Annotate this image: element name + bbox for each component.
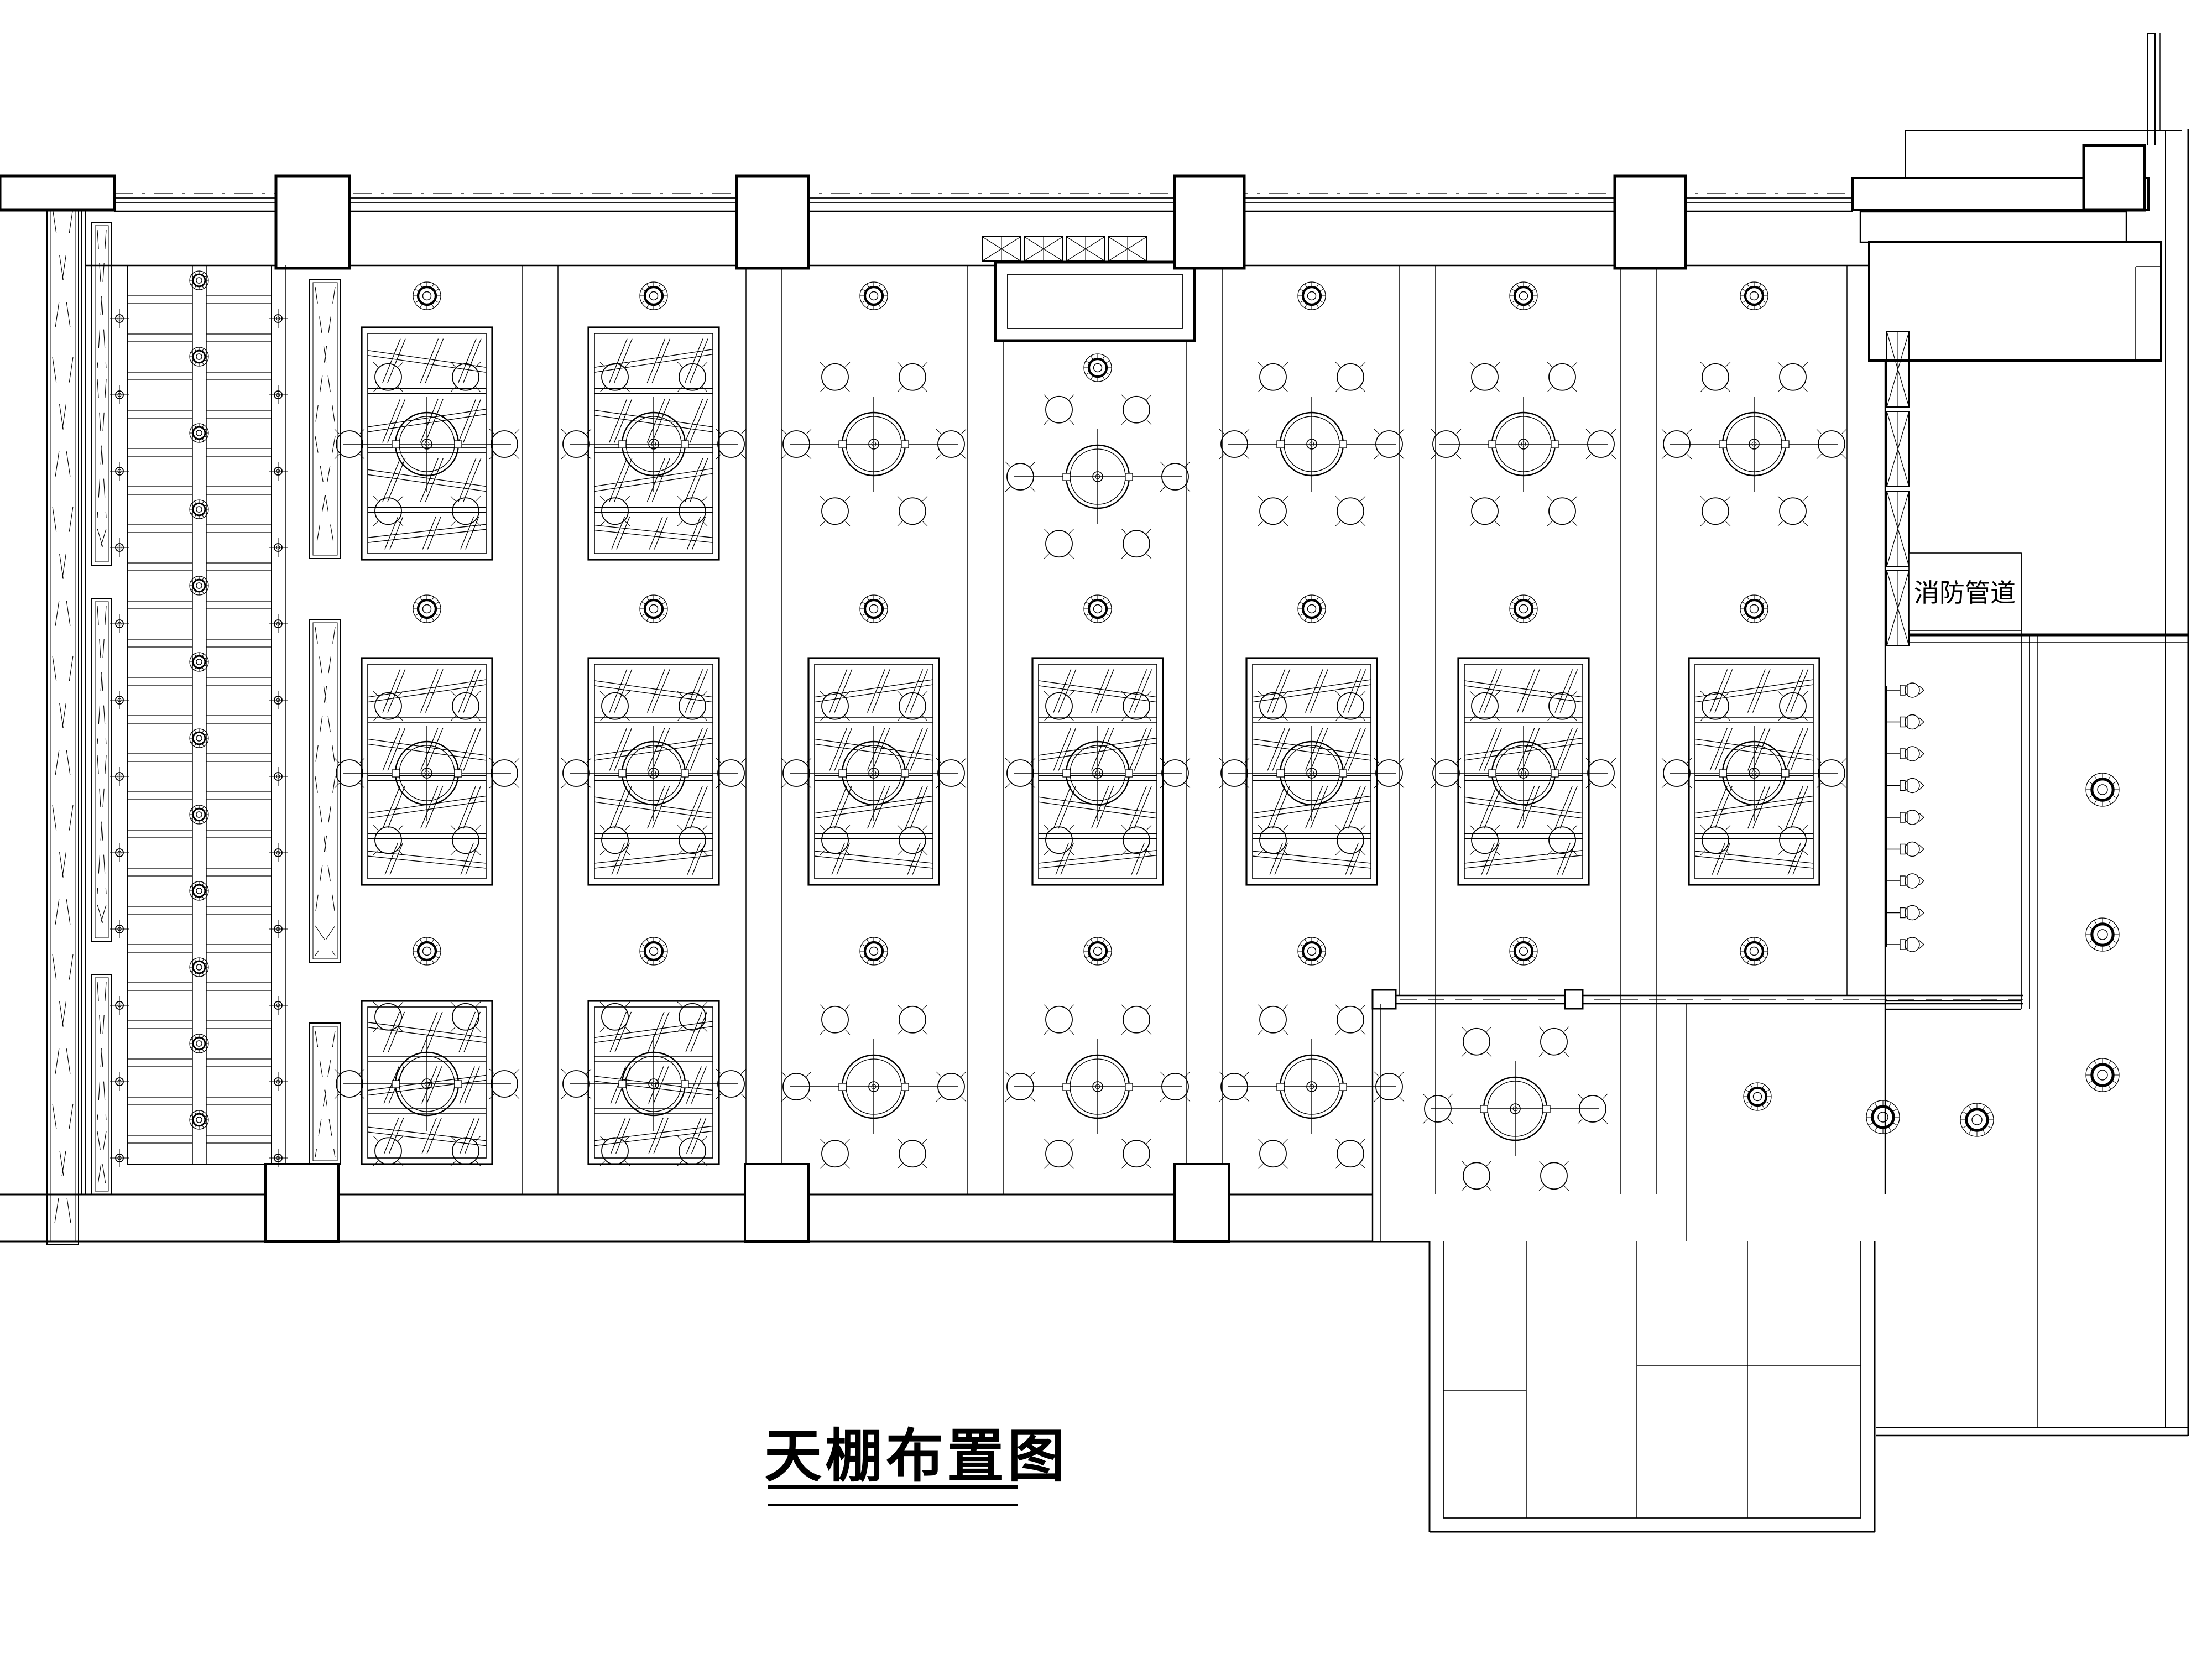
downlight-spoke (1531, 613, 1535, 615)
chandelier-lamp-tick (820, 521, 825, 526)
downlight-spoke (1305, 304, 1307, 307)
downlight-spoke (862, 613, 865, 615)
chandelier-lamp-tick (1121, 420, 1126, 424)
chandelier-lamp-tick (922, 1164, 927, 1168)
downlight-spoke (1969, 1129, 1971, 1134)
circle (2098, 785, 2107, 795)
downlight-spoke (415, 602, 419, 604)
circle (193, 885, 205, 897)
chandelier-lamp-tick (1539, 1027, 1543, 1031)
chandelier-hub (901, 1083, 909, 1091)
chandelier-lamp-tick (1258, 1139, 1262, 1143)
downlight-symbol (2086, 1058, 2119, 1092)
column-block (265, 1164, 338, 1241)
downlight-spoke (202, 577, 204, 580)
wall-rect (95, 226, 108, 562)
chandelier-lamp-tick (1360, 1164, 1365, 1168)
column-block (276, 176, 349, 268)
downlight-spoke (1747, 284, 1750, 288)
chandelier-lamp-tick (1258, 387, 1262, 392)
downlight-spoke (1517, 597, 1519, 601)
circle (865, 942, 883, 960)
downlight-spoke (1528, 939, 1530, 943)
extension-floor (1430, 1241, 1875, 1532)
downlight-spoke (878, 284, 880, 288)
downlight-spoke (202, 1035, 204, 1038)
circle (193, 274, 205, 286)
chandelier-lamp-tick (1160, 1097, 1165, 1101)
downlight-spoke (1316, 959, 1318, 963)
chandelier-lamp-tick (1121, 395, 1126, 399)
downlight-symbol (190, 424, 208, 442)
wall-rect (313, 283, 337, 555)
downlight-spoke (431, 284, 434, 288)
downlight-spoke (1102, 617, 1104, 620)
chandelier-lamp-tick (845, 1005, 849, 1009)
duct-x-box (1887, 491, 1909, 566)
downlight-spoke (1869, 1123, 1874, 1125)
chandelier-lamp-tick (1069, 1139, 1073, 1143)
chandelier-lamp-tick (1121, 554, 1126, 559)
chandelier-lamp-tick (1146, 1030, 1151, 1034)
downlight-spoke (647, 304, 649, 307)
downlight-symbol (190, 271, 208, 290)
circle (1308, 947, 1316, 956)
chandelier-lamp-tick (1185, 1072, 1190, 1076)
downlight-spoke (1091, 939, 1093, 943)
chandelier-lamp (1337, 498, 1364, 524)
downlight-spoke (2088, 940, 2093, 943)
downlight-spoke (1742, 613, 1746, 615)
chandelier-lamp-tick (898, 1164, 902, 1168)
chandelier-lamp-tick (1044, 529, 1048, 533)
sprinkler-symbol (1887, 874, 1924, 888)
chandelier-lamp-tick (936, 1072, 941, 1076)
downlight-spoke (881, 602, 885, 604)
downlight-spoke (1528, 304, 1530, 307)
downlight-spoke (881, 613, 885, 615)
circle (418, 942, 436, 960)
chandelier-lamp-tick (845, 362, 849, 367)
chandelier-lamp-tick (961, 1072, 966, 1076)
downlight-spoke (867, 597, 869, 601)
chandelier-lamp-tick (1069, 1005, 1073, 1009)
downlight-spoke (195, 362, 196, 365)
chandelier-lamp-tick (1335, 1139, 1340, 1143)
chandelier-lamp-tick (1495, 496, 1499, 500)
wall-rect (1900, 781, 1905, 791)
downlight-spoke (205, 810, 207, 812)
column-block (1175, 176, 1244, 268)
wall-rect (1900, 749, 1905, 759)
chandelier-lamp (1541, 1162, 1567, 1189)
chandelier-lamp-tick (1219, 758, 1224, 763)
wall-rect (47, 200, 79, 1244)
drawing-title-block: 天棚布置图 (764, 1409, 1024, 1493)
downlight-spoke (2108, 1084, 2111, 1089)
circle (193, 351, 205, 363)
downlight-spoke (431, 304, 434, 307)
chandelier-lamp-tick (1146, 395, 1151, 399)
downlight-spoke (1105, 613, 1109, 615)
circle (1094, 947, 1102, 956)
downlight-spoke (205, 429, 207, 430)
downlight-spoke (1305, 597, 1307, 601)
chandelier-lamp-tick (1547, 362, 1552, 367)
downlight-spoke (1105, 372, 1109, 374)
downlight-spoke (415, 289, 419, 291)
circle (1749, 1088, 1766, 1105)
downlight-spoke (1086, 602, 1089, 604)
circle (1515, 600, 1532, 618)
crosshair-light-symbol (110, 843, 129, 862)
circle (193, 427, 205, 439)
chandelier-lamp-tick (1258, 1164, 1262, 1168)
chandelier-lamp (1702, 364, 1729, 390)
chandelier-lamp-tick (1283, 362, 1287, 367)
circle (870, 605, 878, 613)
downlight-spoke (1528, 617, 1530, 620)
chandelier-lamp-tick (1456, 429, 1460, 434)
wall-rect (310, 619, 341, 962)
chandelier-lamp-tick (1495, 387, 1499, 392)
circle (1515, 942, 1532, 960)
chandelier-lamp-tick (1005, 1072, 1010, 1076)
downlight-spoke (878, 617, 880, 620)
downlight-spoke (1528, 959, 1530, 963)
downlight-spoke (431, 959, 434, 963)
downlight-spoke (1091, 597, 1093, 601)
chandelier-lamp-tick (1539, 1186, 1543, 1191)
downlight-symbol (190, 1110, 208, 1129)
downlight-spoke (867, 617, 869, 620)
downlight-spoke (1531, 602, 1535, 604)
downlight-spoke (1105, 956, 1109, 958)
walls-and-beams-layer (0, 176, 1885, 1244)
chandelier-hub (1277, 441, 1284, 448)
downlight-spoke (202, 744, 204, 747)
chandelier-lamp-tick (1005, 1097, 1010, 1101)
circle (1872, 1107, 1893, 1128)
chandelier-lamp-tick (898, 387, 902, 392)
downlight-spoke (867, 939, 869, 943)
chandelier-lamp-tick (1486, 1161, 1491, 1165)
chandelier-lamp-tick (1462, 1027, 1466, 1031)
circle (650, 947, 658, 956)
chandelier-lamp-tick (961, 783, 966, 787)
sprinkler-symbol (1887, 747, 1924, 761)
duct-x-box (1887, 571, 1909, 646)
hatch-dash (315, 776, 335, 915)
chandelier-symbol (1219, 1005, 1404, 1168)
chandelier-lamp (1780, 364, 1806, 390)
chandelier-lamp-tick (845, 496, 849, 500)
downlight-symbol (1740, 937, 1768, 965)
chandelier-lamp-tick (1539, 1052, 1543, 1056)
downlight-spoke (435, 602, 439, 604)
downlight-spoke (1511, 956, 1515, 958)
chandelier-lamp-tick (1462, 1052, 1466, 1056)
ceiling-plan-canvas: 消防管道 (0, 0, 2212, 1659)
downlight-spoke (1305, 284, 1307, 288)
downlight-spoke (195, 667, 196, 670)
chandelier-lamp (1472, 364, 1498, 390)
chandelier-lamp-tick (1841, 758, 1846, 763)
downlight-spoke (1511, 300, 1515, 302)
chandelier-lamp-tick (1778, 387, 1782, 392)
circle (645, 287, 662, 305)
hatch-dash (315, 1031, 335, 1157)
circle (1094, 364, 1102, 372)
circle (645, 600, 662, 618)
chandelier-lamp-tick (1803, 521, 1807, 526)
downlight-spoke (205, 505, 207, 507)
chandelier-lamp-tick (961, 429, 966, 434)
sprinkler-symbol (1887, 779, 1924, 793)
chandelier-lamp-tick (781, 454, 786, 458)
downlight-spoke (195, 1049, 196, 1052)
downlight-spoke (2088, 1081, 2093, 1083)
wall-rect (310, 279, 341, 559)
chandelier-hub (901, 770, 909, 777)
downlight-spoke (1091, 617, 1093, 620)
chandelier-lamp-tick (1470, 362, 1474, 367)
chandelier-lamp-tick (1185, 487, 1190, 491)
downlight-spoke (1316, 304, 1318, 307)
downlight-spoke (1762, 613, 1766, 615)
chandelier-lamp-tick (1778, 521, 1782, 526)
circle (1745, 287, 1763, 305)
downlight-spoke (1747, 617, 1750, 620)
chandelier-lamp-tick (1399, 1072, 1404, 1076)
chandelier-hub (1782, 770, 1789, 777)
crosshair-light-symbol (110, 691, 129, 709)
chandelier-hub (839, 441, 846, 448)
downlight-spoke (195, 286, 196, 289)
downlight-spoke (862, 945, 865, 947)
downlight-spoke (867, 284, 869, 288)
downlight-spoke (661, 956, 665, 958)
downlight-spoke (1762, 945, 1766, 947)
chandelier-lamp-tick (922, 1005, 927, 1009)
downlight-spoke (420, 617, 422, 620)
chandelier-lamp-tick (1121, 1139, 1126, 1143)
chandelier-lamp-tick (1258, 496, 1262, 500)
downlight-spoke (1531, 945, 1535, 947)
chandelier-hub (619, 1081, 626, 1088)
downlight-spoke (1531, 956, 1535, 958)
chandelier-hub (619, 770, 626, 777)
downlight-spoke (1300, 289, 1303, 291)
circle (1520, 292, 1528, 300)
chandelier-hub (392, 441, 399, 448)
downlight-spoke (1319, 300, 1323, 302)
downlight-spoke (1305, 617, 1307, 620)
chandelier-lamp-tick (1841, 783, 1846, 787)
circle (1303, 600, 1321, 618)
chandelier-lamp-tick (820, 387, 825, 392)
chandelier-lamp (1046, 1006, 1072, 1033)
downlight-spoke (202, 820, 204, 823)
downlight-spoke (1517, 617, 1519, 620)
circle (870, 292, 878, 300)
hatched-strip (310, 1023, 341, 1164)
downlight-symbol (413, 595, 441, 623)
chandelier-lamp-tick (561, 429, 566, 434)
chandelier-lamp-tick (1495, 521, 1499, 526)
chandelier-hub (1277, 1083, 1284, 1091)
chandelier-lamp (1549, 364, 1575, 390)
circle (423, 605, 431, 613)
wall-rect (313, 623, 337, 959)
chandelier-lamp-tick (1044, 1005, 1048, 1009)
corner-column-block (2084, 145, 2145, 210)
downlight-spoke (435, 945, 439, 947)
chandelier-lamp-tick (1185, 1097, 1190, 1101)
downlight-spoke (661, 602, 665, 604)
circle (1515, 287, 1532, 305)
chandelier-hub (1063, 473, 1070, 481)
chandelier-lamp-tick (1803, 362, 1807, 367)
downlight-spoke (1319, 613, 1323, 615)
downlight-spoke (205, 971, 207, 972)
chandelier-lamp-tick (1335, 1030, 1340, 1034)
chandelier-lamp-tick (1069, 554, 1073, 559)
chandelier-lamp-tick (781, 429, 786, 434)
chandelier-lamp-tick (561, 1094, 566, 1098)
chandelier-lamp-tick (1448, 1094, 1452, 1098)
downlight-symbol (860, 937, 888, 965)
downlight-spoke (878, 959, 880, 963)
downlight-spoke (647, 284, 649, 288)
circle (2098, 930, 2107, 940)
downlight-spoke (1759, 617, 1761, 620)
chandelier-lamp-tick (781, 1072, 786, 1076)
crosshair-light-symbol (110, 767, 129, 786)
chandelier-lamp-tick (1005, 783, 1010, 787)
chandelier-lamp-tick (1160, 1072, 1165, 1076)
chandelier-lamp-tick (1335, 362, 1340, 367)
downlight-spoke (1102, 375, 1104, 379)
downlight-spoke (881, 289, 885, 291)
chandelier-lamp-tick (561, 783, 566, 787)
downlight-spoke (1969, 1105, 1971, 1110)
downlight-spoke (1316, 617, 1318, 620)
chandelier-lamp-tick (1335, 521, 1340, 526)
circle (870, 947, 878, 956)
downlight-spoke (867, 304, 869, 307)
circle (193, 503, 205, 515)
chandelier-lamp-tick (1121, 1030, 1126, 1034)
chandelier-lamp-tick (1662, 429, 1666, 434)
circle (645, 942, 662, 960)
chandelier-lamp-tick (820, 1005, 825, 1009)
chandelier-lamp-tick (1448, 1119, 1452, 1123)
downlight-spoke (2108, 920, 2111, 925)
downlight-spoke (420, 939, 422, 943)
downlight-spoke (1319, 289, 1323, 291)
downlight-spoke (881, 945, 885, 947)
downlight-spoke (641, 945, 645, 947)
downlight-spoke (641, 300, 645, 302)
downlight-symbol (1510, 937, 1537, 965)
chandelier-lamp-tick (1044, 1139, 1048, 1143)
chandelier-lamp-tick (1121, 1005, 1126, 1009)
chandelier-lamp (1337, 1006, 1364, 1033)
chandelier-lamp-tick (1662, 783, 1666, 787)
downlight-spoke (1759, 939, 1761, 943)
sprinkler-symbol (1887, 842, 1924, 857)
chandelier-lamp (1463, 1162, 1490, 1189)
downlight-spoke (202, 1112, 204, 1114)
downlight-spoke (1528, 284, 1530, 288)
downlight-spoke (202, 286, 204, 289)
circle (1303, 942, 1321, 960)
chandelier-hub (1339, 770, 1347, 777)
chandelier-lamp-tick (741, 1094, 745, 1098)
chandelier-lamp-tick (1069, 395, 1073, 399)
chandelier-lamp-tick (1817, 429, 1821, 434)
downlight-spoke (1300, 300, 1303, 302)
chandelier-lamp-tick (1700, 362, 1705, 367)
roof-truss-box (1024, 237, 1063, 261)
downlight-spoke (2108, 944, 2111, 949)
chandelier-lamp-tick (335, 429, 339, 434)
downlight-spoke (195, 883, 196, 885)
downlight-spoke (1762, 300, 1766, 302)
chandelier-lamp-tick (1564, 1186, 1568, 1191)
downlight-spoke (202, 973, 204, 975)
chandelier-lamp-tick (1803, 496, 1807, 500)
chandelier-lamp-tick (820, 496, 825, 500)
downlight-spoke (2094, 920, 2097, 925)
downlight-spoke (1086, 372, 1089, 374)
downlight-spoke (1319, 956, 1323, 958)
downlight-spoke (205, 963, 207, 964)
chandelier-lamp-tick (1335, 1164, 1340, 1168)
downlight-spoke (1319, 602, 1323, 604)
downlight-symbol (1298, 937, 1326, 965)
wall-rect (92, 598, 112, 941)
circle (1520, 947, 1528, 956)
downlight-spoke (195, 1035, 196, 1038)
downlight-spoke (1963, 1125, 1968, 1128)
chandelier-lamp-tick (1258, 1030, 1262, 1034)
downlight-spoke (881, 300, 885, 302)
downlight-spoke (202, 806, 204, 809)
column-block (0, 176, 114, 210)
chandelier-lamp-tick (1578, 1094, 1582, 1098)
chandelier-lamp-tick (922, 496, 927, 500)
chandelier-lamp-tick (1244, 454, 1249, 458)
chandelier-lamp-tick (1360, 521, 1365, 526)
chandelier-lamp-tick (1662, 454, 1666, 458)
chandelier-symbol (1005, 1005, 1190, 1168)
downlight-spoke (195, 348, 196, 351)
downlight-symbol (1740, 282, 1768, 310)
chandelier-lamp-tick (514, 1069, 519, 1073)
downlight-spoke (1102, 356, 1104, 359)
chandelier-lamp-tick (961, 454, 966, 458)
downlight-spoke (862, 289, 865, 291)
downlight-spoke (202, 730, 204, 733)
downlight-spoke (1762, 289, 1766, 291)
chandelier-lamp-tick (514, 783, 519, 787)
chandelier-lamp-tick (1244, 1072, 1249, 1076)
chandelier-lamp-tick (922, 521, 927, 526)
circle (193, 1037, 205, 1050)
chandelier-lamp-tick (1603, 1119, 1607, 1123)
